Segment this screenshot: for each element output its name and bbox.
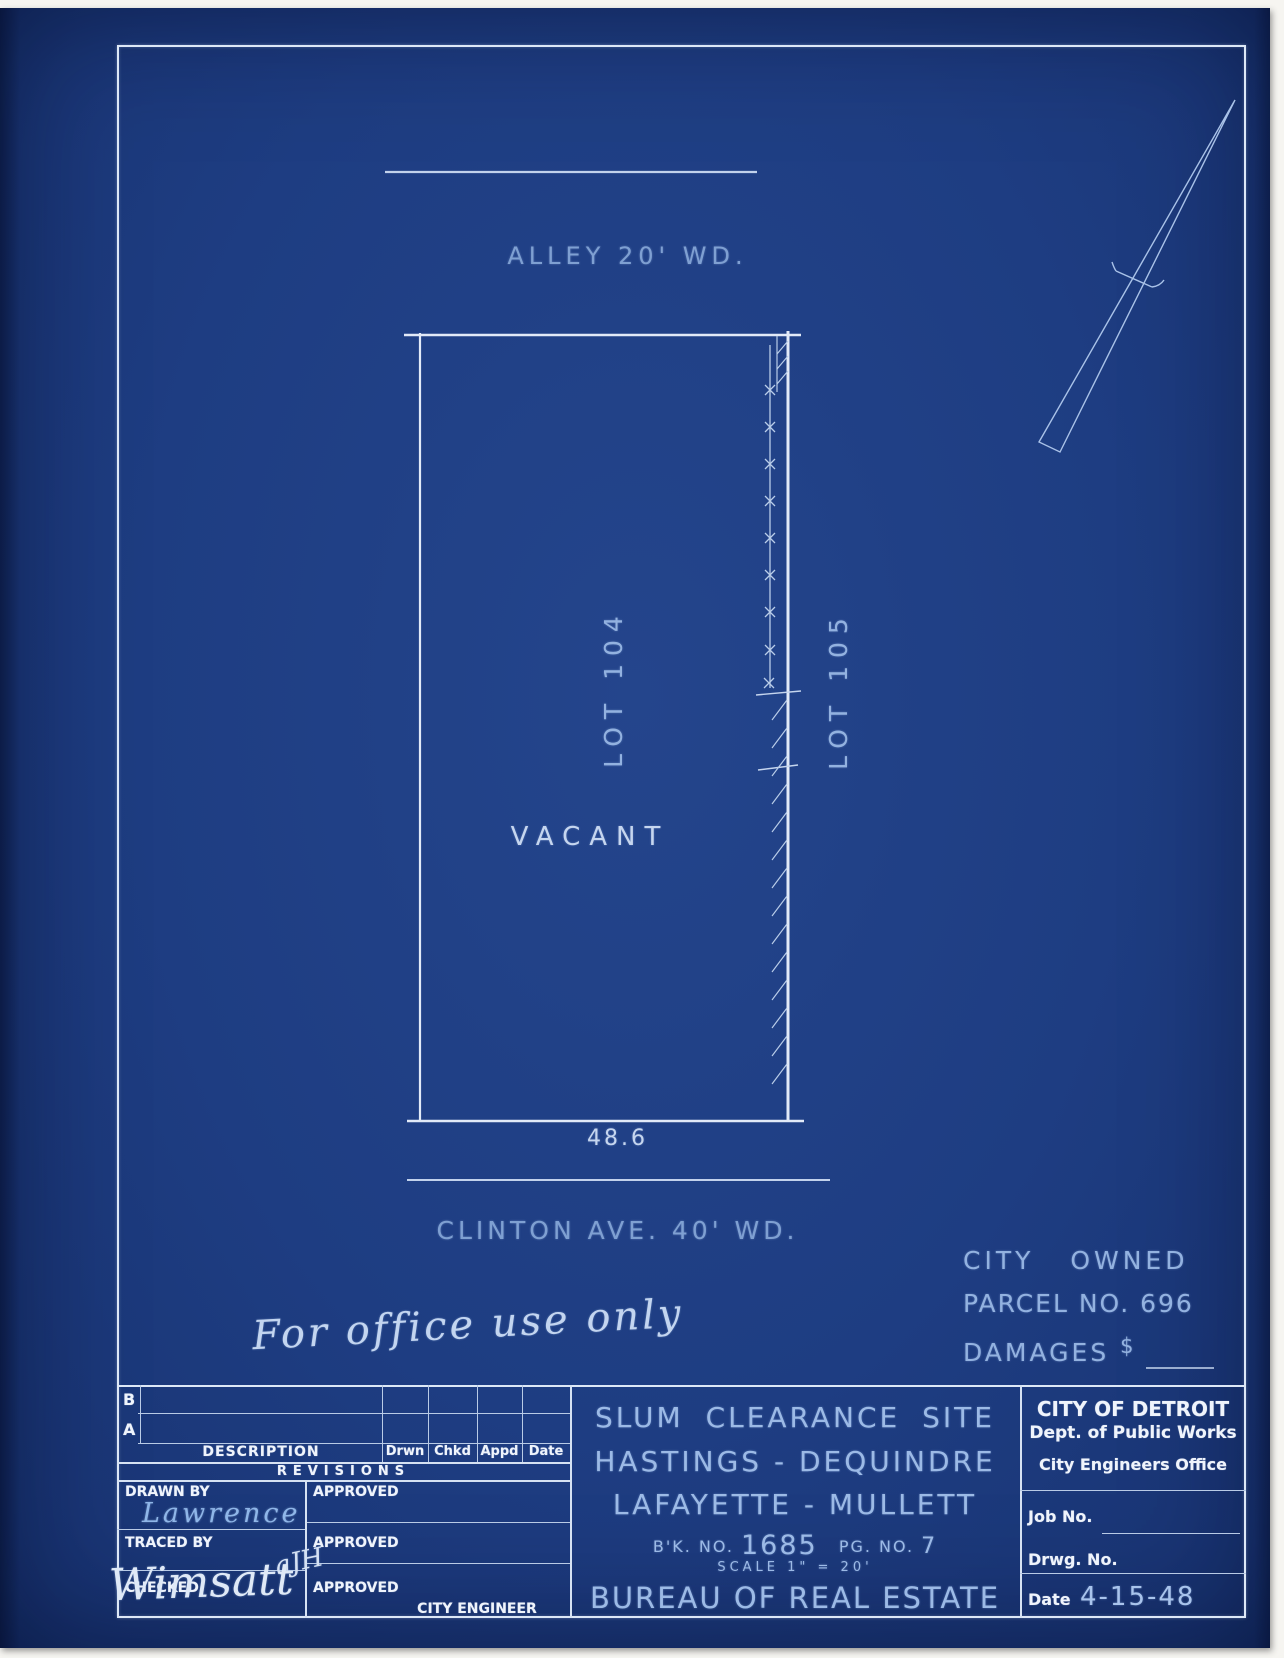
sheet-border [117,45,1246,1618]
scale-value: 1" = 20' [787,1560,873,1575]
traced-by-label: TRACED BY [125,1535,213,1551]
divider-left-center [570,1385,572,1618]
approved-label-1: APPROVED [313,1484,399,1500]
revisions-caption: REVISIONS [117,1464,570,1479]
agency-rule-1 [1020,1490,1246,1491]
page-value: 7 [921,1534,937,1559]
lot-104-label: LOT 104 [599,588,631,788]
rev-letter-divider [140,1385,141,1443]
scale-label: SCALE [717,1560,779,1575]
vacant-label: VACANT [500,822,680,852]
rev-header-date: Date [522,1444,570,1459]
drawn-by-signature: Lawrence [142,1498,301,1529]
date-value: 4-15-48 [1080,1582,1195,1612]
title-block: B A DESCRIPTION Drwn Chkd Appd Date REVI… [117,1385,1246,1618]
scale-line: SCALE 1" = 20' [575,1560,1015,1575]
approved1-rule [307,1522,570,1523]
job-no-rule [1102,1533,1240,1534]
dollar-symbol: $ [1120,1334,1136,1358]
approved-label-3: APPROVED [313,1580,399,1596]
agency-office: City Engineers Office [1020,1455,1246,1474]
frontage-dimension: 48.6 [565,1126,670,1151]
rev-row-b-rule [138,1413,570,1414]
book-page-line: B'K. NO. 1685 PG. NO. 7 [575,1530,1015,1561]
rev-caption-rule [117,1480,570,1482]
parcel-number-note: PARCEL NO. 696 [963,1289,1194,1318]
book-label: B'K. NO. [653,1537,734,1556]
damages-note: DAMAGES $ [963,1334,1137,1367]
city-owned-note: CITY OWNED [963,1246,1188,1275]
agency-city: CITY OF DETROIT [1020,1397,1246,1421]
revision-row-a: A [123,1420,135,1439]
approved2-rule [307,1563,570,1564]
title-block-top-rule [117,1385,1246,1387]
rev-header-drwn: Drwn [382,1444,428,1459]
page-label: PG. NO. [839,1537,914,1556]
project-title-1: SLUM CLEARANCE SITE [575,1401,1015,1434]
rev-header-chkd: Chkd [428,1444,477,1459]
alley-label: ALLEY 20' WD. [455,242,800,270]
drwg-no-rule [1020,1573,1246,1574]
agency-department: Dept. of Public Works [1020,1423,1246,1443]
lot-105-label: LOT 105 [824,590,856,790]
damages-label: DAMAGES [963,1338,1109,1367]
checked-signature: Wimsatt [108,1554,294,1611]
rev-header-description: DESCRIPTION [140,1444,382,1460]
approved-label-2: APPROVED [313,1535,399,1551]
date-label: Date [1028,1590,1071,1609]
project-title-3: LAFAYETTE - MULLETT [575,1488,1015,1521]
city-engineer-label: CITY ENGINEER [412,1601,542,1617]
drawn-by-rule [117,1529,305,1530]
drwg-no-label: Drwg. No. [1028,1550,1118,1569]
project-title-2: HASTINGS - DEQUINDRE [575,1445,1015,1478]
bureau-line: BUREAU OF REAL ESTATE [573,1581,1017,1615]
rev-header-appd: Appd [477,1444,522,1459]
street-label: CLINTON AVE. 40' WD. [420,1216,815,1245]
book-value: 1685 [741,1530,818,1561]
revision-row-b: B [123,1390,135,1409]
job-no-label: Job No. [1028,1507,1092,1526]
